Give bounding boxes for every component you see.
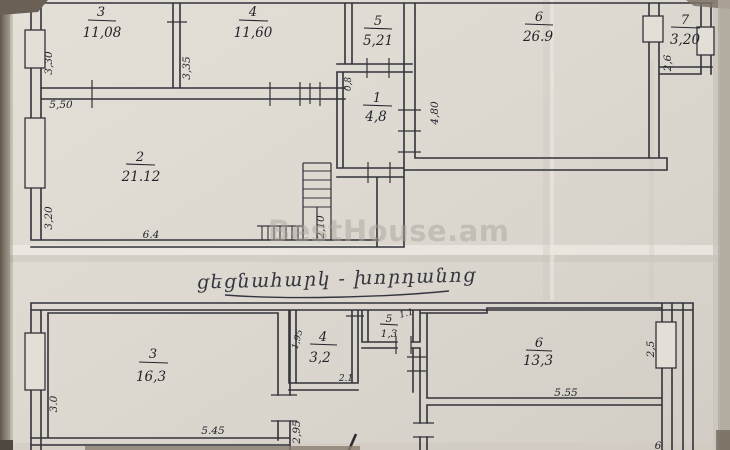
dimension-label: 5,50: [49, 99, 73, 111]
window-icon: [25, 30, 45, 68]
floorplan-photo: 3 11,08 4 11,60 5 5,21 6 26.9 7 3,20 1 4…: [0, 0, 730, 450]
room-number: 6: [535, 10, 543, 25]
room-number: 4: [318, 330, 327, 345]
room-area: 21.12: [121, 169, 161, 185]
dimension-label: 2,6: [662, 54, 674, 72]
room-number: 1: [373, 91, 381, 106]
room-area: 1,3: [381, 328, 398, 340]
dimension-label: 2,95: [291, 420, 303, 445]
room-area: 13,3: [523, 353, 553, 369]
room-area: 5,21: [363, 33, 393, 49]
dimension-label: 0,8: [344, 77, 354, 92]
room-number: 5: [386, 313, 393, 325]
room-area: 3,20: [670, 32, 700, 48]
dimension-label: 4,80: [429, 101, 441, 126]
dimension-label: 5.55: [554, 387, 578, 399]
dimension-label: 3,20: [43, 206, 55, 230]
window-icon: [656, 322, 676, 368]
dimension-label: 5.45: [201, 425, 225, 437]
room-number: 4: [248, 5, 257, 20]
window-icon: [643, 16, 663, 42]
dimension-label: 2,5: [645, 340, 657, 358]
floorplan-drawing: 3 11,08 4 11,60 5 5,21 6 26.9 7 3,20 1 4…: [0, 0, 730, 450]
room-area: 11,08: [83, 25, 122, 41]
room-number: 6: [535, 336, 543, 351]
room-area: 16,3: [136, 369, 166, 385]
room-area: 11,60: [234, 25, 273, 41]
dimension-label: 6.4: [143, 229, 160, 241]
room-number: 3: [97, 5, 105, 20]
dimension-label: 2.1: [338, 374, 353, 384]
window-icon: [25, 118, 45, 188]
dimension-label: 6: [655, 440, 662, 450]
watermark-text: BestHouse.am: [268, 214, 509, 248]
room-area: 3,2: [309, 350, 330, 366]
dimension-label: 3.0: [48, 395, 60, 412]
room-number: 5: [374, 14, 382, 29]
dimension-label: 3,35: [181, 56, 193, 80]
window-icon: [25, 333, 45, 390]
dimension-label: 3,30: [43, 51, 55, 75]
room-number: 3: [149, 347, 157, 362]
room-area: 4,8: [364, 109, 387, 125]
room-area: 26.9: [522, 29, 553, 45]
room-number: 2: [135, 150, 144, 165]
room-number: 7: [681, 13, 690, 28]
